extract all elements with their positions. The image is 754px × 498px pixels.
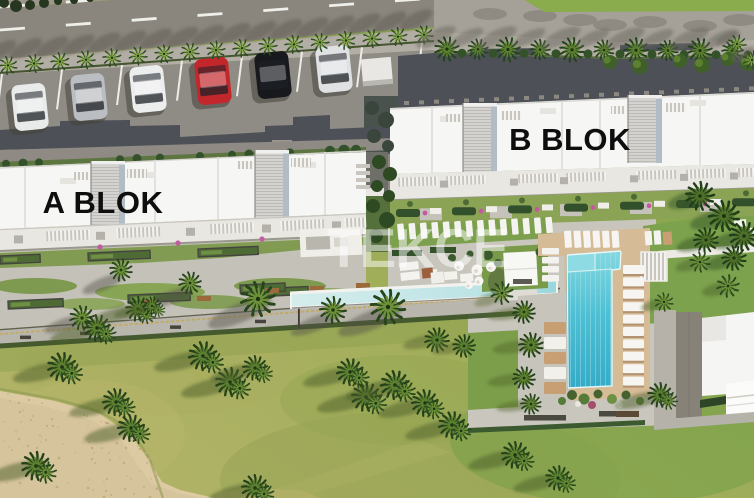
svg-text:A BLOK: A BLOK <box>43 185 164 220</box>
svg-text:TEKCE: TEKCE <box>327 217 508 279</box>
svg-text:B BLOK: B BLOK <box>509 122 631 157</box>
